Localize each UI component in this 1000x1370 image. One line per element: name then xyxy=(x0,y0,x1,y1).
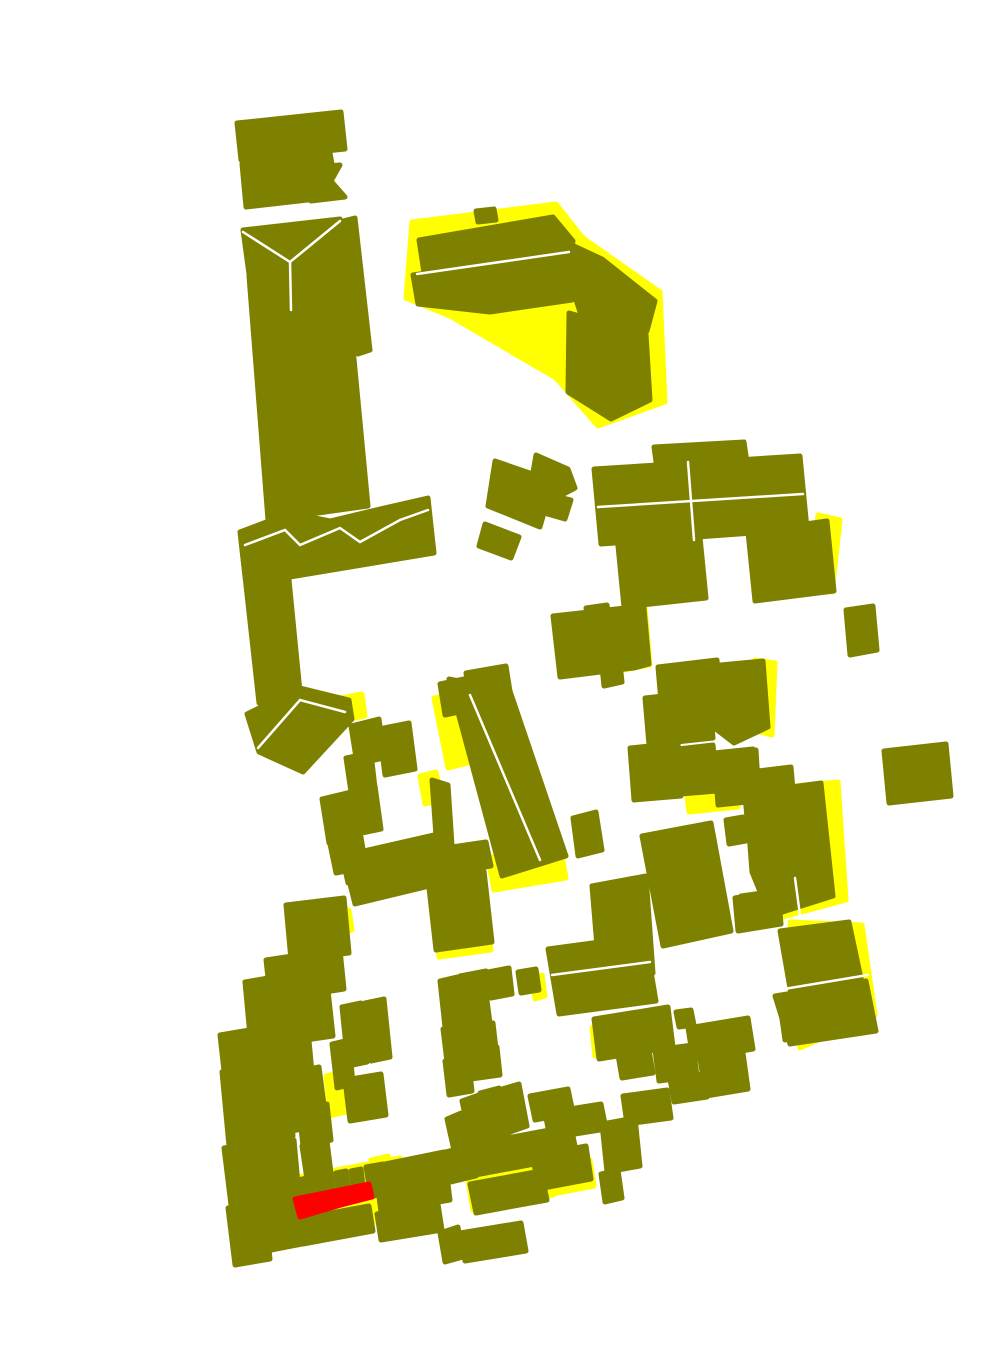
building-o5 xyxy=(670,1074,707,1102)
building-ri2 xyxy=(252,1063,293,1143)
building-segmentation-mask xyxy=(0,0,1000,1370)
building-s4 xyxy=(488,968,512,998)
building-i-tab xyxy=(618,537,706,607)
building-k-square xyxy=(726,817,746,844)
ridge-b-stem xyxy=(290,262,291,310)
segmentation-canvas xyxy=(0,0,1000,1370)
building-t1 xyxy=(642,823,731,946)
building-h5 xyxy=(573,812,602,856)
building-o2 xyxy=(676,1010,694,1027)
building-k5 xyxy=(630,743,681,800)
building-g4 xyxy=(601,654,622,686)
building-rm xyxy=(365,999,390,1061)
building-e4 xyxy=(544,494,571,519)
building-j xyxy=(846,606,877,655)
building-t6 xyxy=(548,936,656,1014)
building-k4 xyxy=(708,661,768,743)
building-k1 xyxy=(630,634,646,662)
building-ru xyxy=(260,1208,302,1251)
building-m-up2 xyxy=(379,723,415,775)
building-i-right xyxy=(748,521,834,601)
building-rj xyxy=(332,1040,353,1088)
building-k3 xyxy=(645,691,713,745)
building-t3 xyxy=(735,890,781,931)
building-d-chimney xyxy=(476,209,496,222)
building-z3 xyxy=(460,1223,526,1261)
building-x2 xyxy=(601,1170,622,1202)
building-s5 xyxy=(518,969,539,993)
building-g-chimney xyxy=(586,605,609,619)
building-m1 xyxy=(884,744,951,803)
building-v xyxy=(781,1008,800,1040)
building-s9 xyxy=(468,1047,500,1079)
building-e3 xyxy=(479,524,519,558)
building-n-up2 xyxy=(351,786,381,834)
building-y2 xyxy=(533,1146,591,1189)
building-k6 xyxy=(678,745,717,794)
building-o3 xyxy=(618,1050,653,1078)
